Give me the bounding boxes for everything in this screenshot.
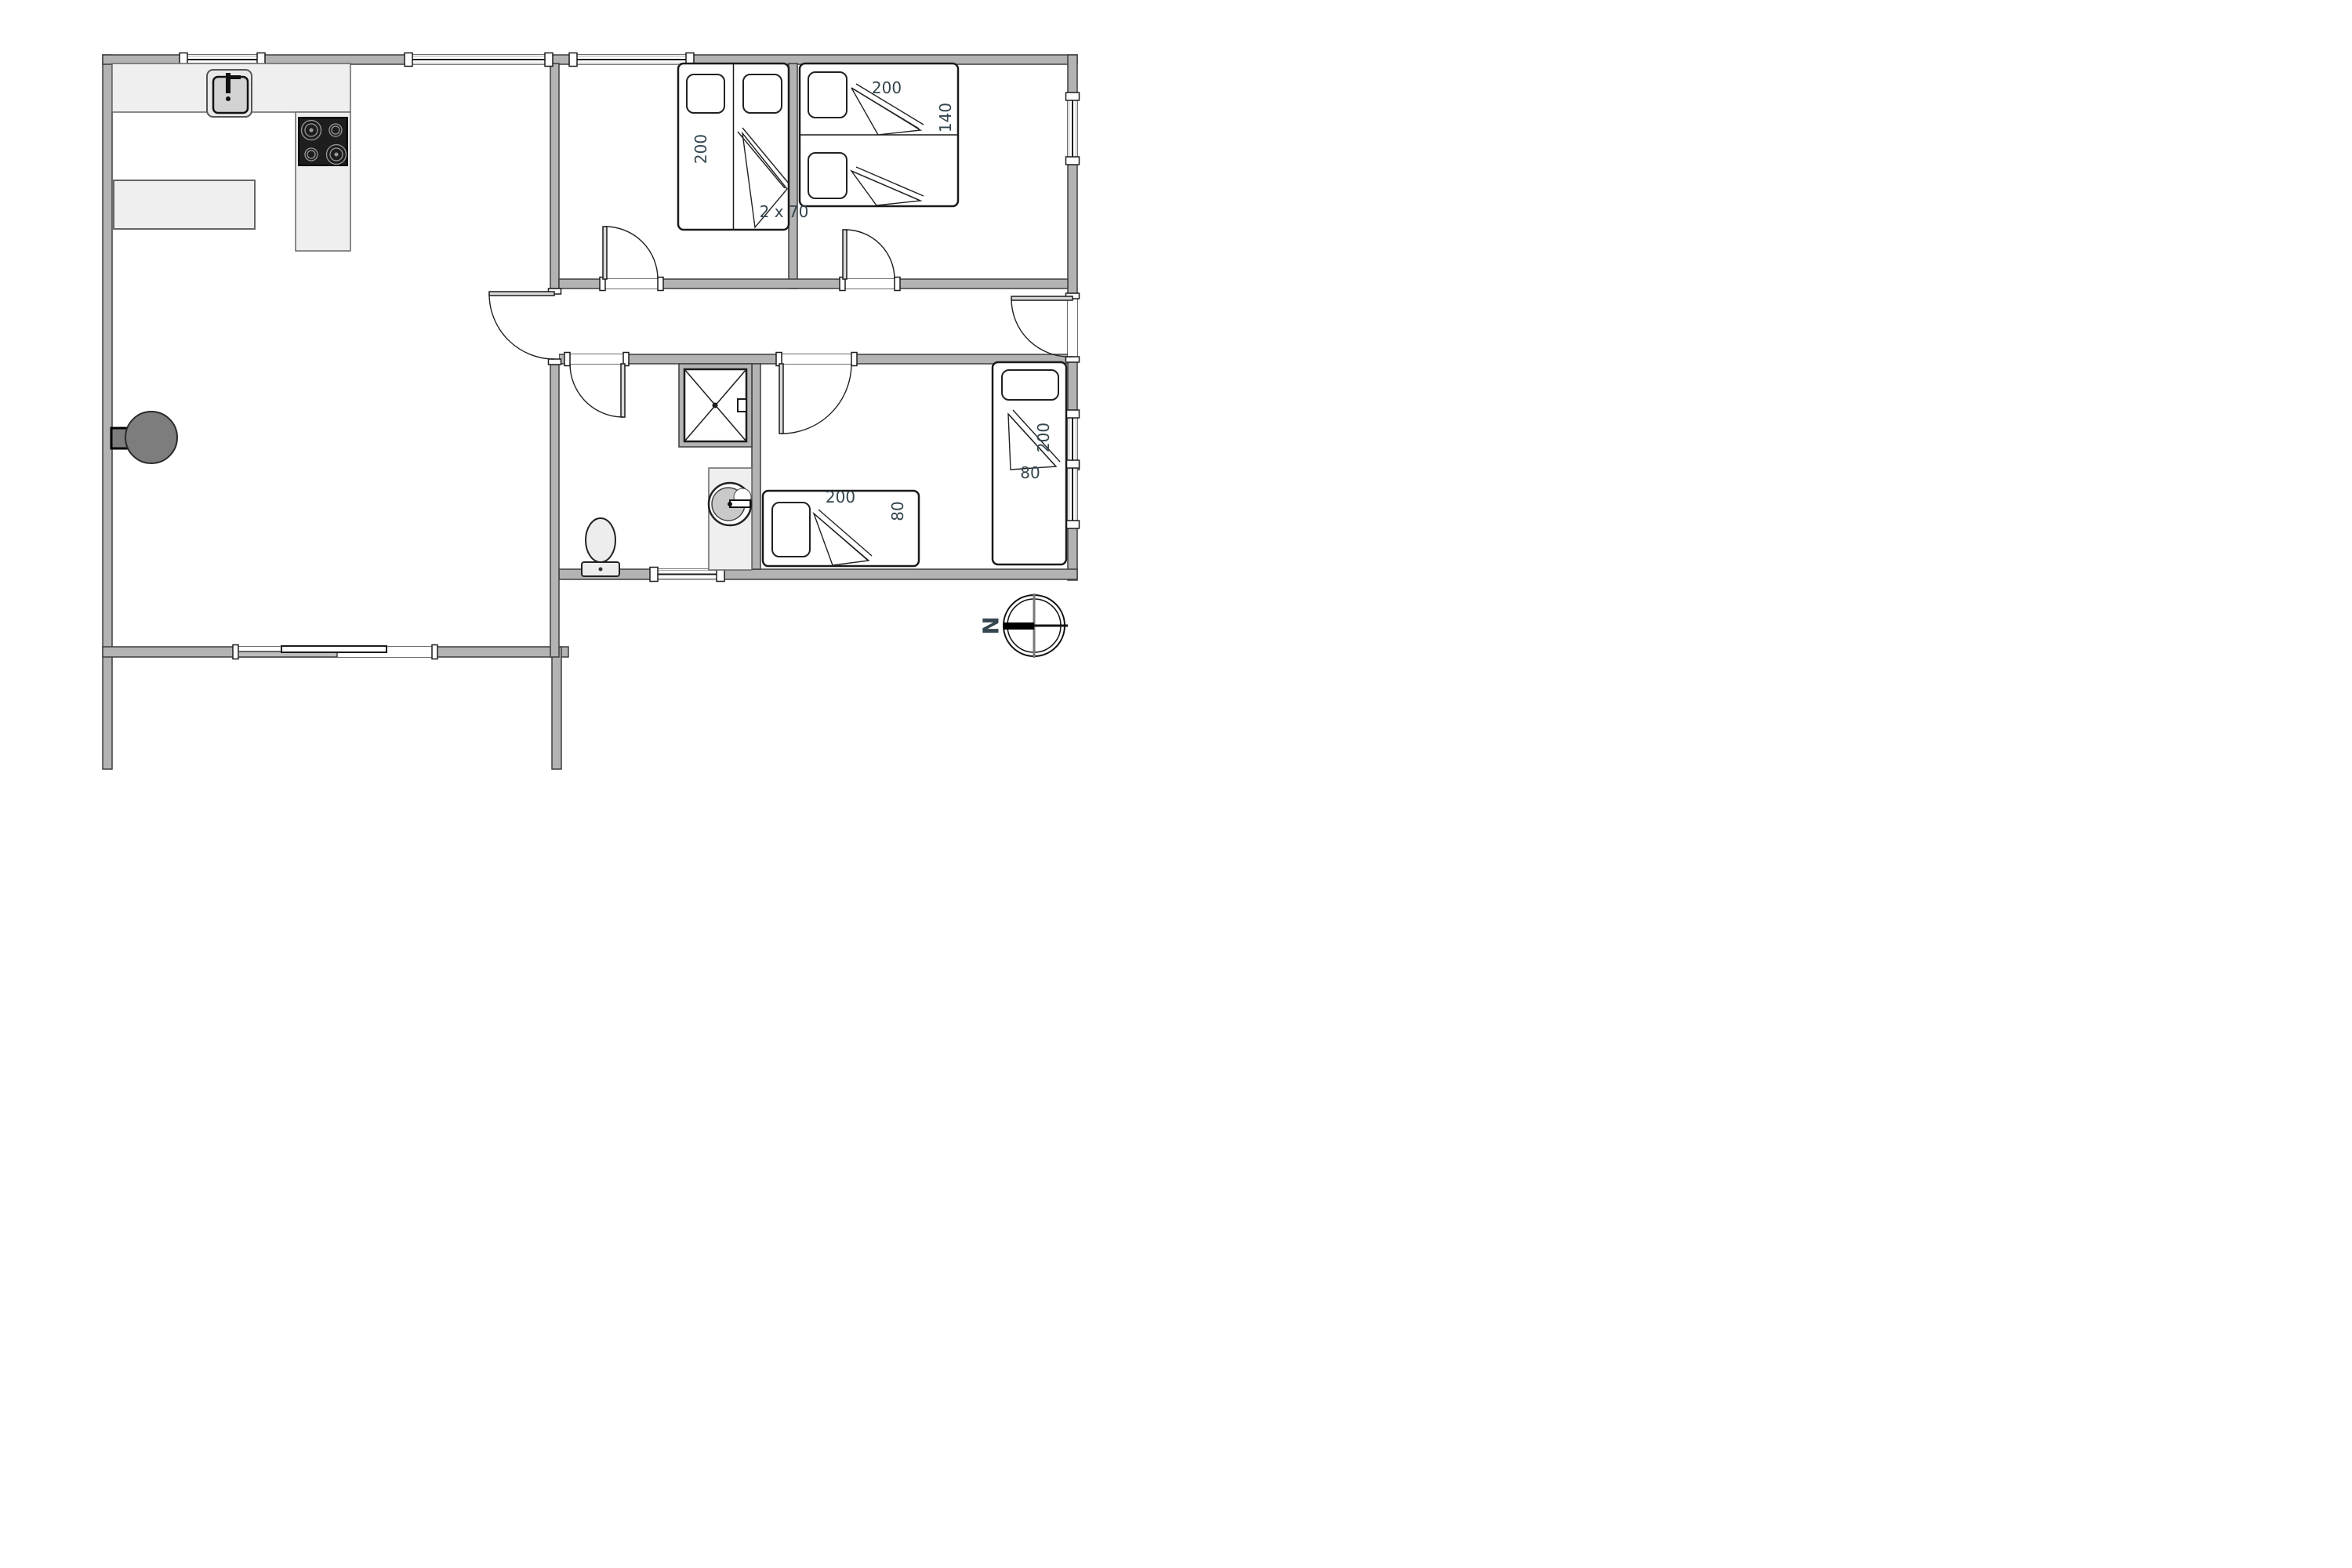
- bed-double-bedroom2-pillow: [808, 153, 847, 198]
- dim-bedroom1-bed-length: 200: [691, 134, 710, 164]
- window-bathroom-south-sill: [650, 568, 658, 582]
- window-bedroom3-east-upper-sill: [1066, 410, 1080, 418]
- kitchen-sink-drain: [226, 96, 230, 101]
- compass-north-label: N: [978, 616, 1004, 634]
- floor-plan-drawing: 2002 x 702001402008020080N: [0, 0, 1176, 784]
- door-opening-bedroom1-jamb: [658, 278, 663, 291]
- door-bedroom1-swing-arc: [605, 227, 658, 279]
- dim-bedroom2-bed-length: 200: [872, 78, 902, 97]
- door-opening-bedroom3-jamb: [851, 353, 857, 366]
- bed-double-bedroom2-pillow: [808, 72, 847, 118]
- door-hallway-living-swing-arc: [489, 294, 554, 359]
- dim-bedroom3-east-bed-length: 200: [1034, 423, 1053, 452]
- dim-bedroom3-east-bed-width: 80: [1020, 463, 1040, 482]
- shower-drain: [713, 403, 718, 408]
- wall-bathroom-bedroom3-divider: [752, 364, 760, 569]
- shower-faucet-icon: [738, 399, 746, 412]
- window-living-north-sill: [405, 53, 412, 67]
- wall-interior-bedroom-divider: [789, 64, 797, 289]
- burner-center: [335, 153, 339, 157]
- window-bedroom2-east-sill: [1066, 157, 1080, 165]
- bed-twin-bedroom1-pillow: [687, 74, 724, 113]
- window-living-north-sill: [545, 53, 553, 67]
- wall-exterior-left: [103, 55, 112, 769]
- toilet-flush: [599, 568, 603, 572]
- door-opening-hallway-living: [550, 294, 559, 359]
- dim-bedroom1-bed-width: 2 x 70: [760, 202, 809, 221]
- door-entrance-swing-arc: [1011, 299, 1073, 357]
- wall-exterior-bottom-right-section: [559, 569, 1077, 579]
- floor-plan-page: 2002 x 702001402008020080N: [0, 0, 1176, 784]
- door-opening-bedroom2: [845, 279, 895, 289]
- burner-center: [310, 129, 314, 132]
- washbasin-drain: [728, 502, 732, 506]
- door-opening-entrance-jamb: [1066, 357, 1080, 362]
- dim-bedroom2-bed-width: 140: [936, 103, 955, 132]
- washbasin-faucet: [730, 500, 750, 507]
- bed-single-bedroom3-east-pillow: [1002, 370, 1058, 400]
- door-opening-bathroom: [570, 354, 623, 364]
- door-opening-bedroom2-jamb: [895, 278, 900, 291]
- door-bedroom2-swing-arc: [845, 230, 895, 279]
- door-bedroom1-leaf: [603, 227, 607, 279]
- kitchen-island: [114, 180, 255, 229]
- kitchen-sink-faucet: [230, 75, 241, 79]
- door-opening-bedroom1: [605, 279, 658, 289]
- door-bathroom-leaf: [621, 364, 625, 417]
- terrace-sliding-door-jamb: [233, 645, 238, 659]
- terrace-sliding-door-jamb: [432, 645, 437, 659]
- window-bedroom2-east-sill: [1066, 93, 1080, 100]
- wall-terrace-right: [552, 647, 561, 769]
- door-bedroom3-swing-arc: [782, 364, 851, 434]
- dim-bedroom3-south-bed-length: 200: [826, 488, 855, 506]
- door-bedroom2-leaf: [843, 230, 847, 279]
- wall-interior-living-bedroom1: [550, 64, 559, 289]
- terrace-sliding-door-panel: [281, 646, 387, 652]
- window-bedroom3-east-lower-sill: [1066, 521, 1080, 528]
- window-bedroom1-north-sill: [569, 53, 577, 67]
- door-opening-bathroom-jamb: [564, 353, 570, 366]
- kitchen-sink-faucet: [226, 73, 230, 93]
- door-hallway-living-leaf: [489, 292, 554, 296]
- dim-bedroom3-south-bed-width: 80: [888, 501, 907, 521]
- door-opening-hallway-living-jamb: [549, 359, 561, 365]
- door-bathroom-swing-arc: [570, 364, 623, 417]
- toilet-bowl: [586, 518, 615, 562]
- bed-twin-bedroom1-pillow: [743, 74, 782, 113]
- wall-interior-living-bathroom: [550, 365, 559, 657]
- wood-stove: [125, 412, 177, 463]
- door-opening-entrance: [1068, 299, 1077, 357]
- door-entrance-leaf: [1011, 296, 1073, 300]
- door-opening-bedroom3: [782, 354, 851, 364]
- bed-single-bedroom3-south-pillow: [772, 503, 810, 557]
- window-bedroom3-east-lower-sill: [1066, 460, 1080, 468]
- door-bedroom3-leaf: [779, 364, 783, 434]
- compass-rose-needle: [1004, 622, 1034, 630]
